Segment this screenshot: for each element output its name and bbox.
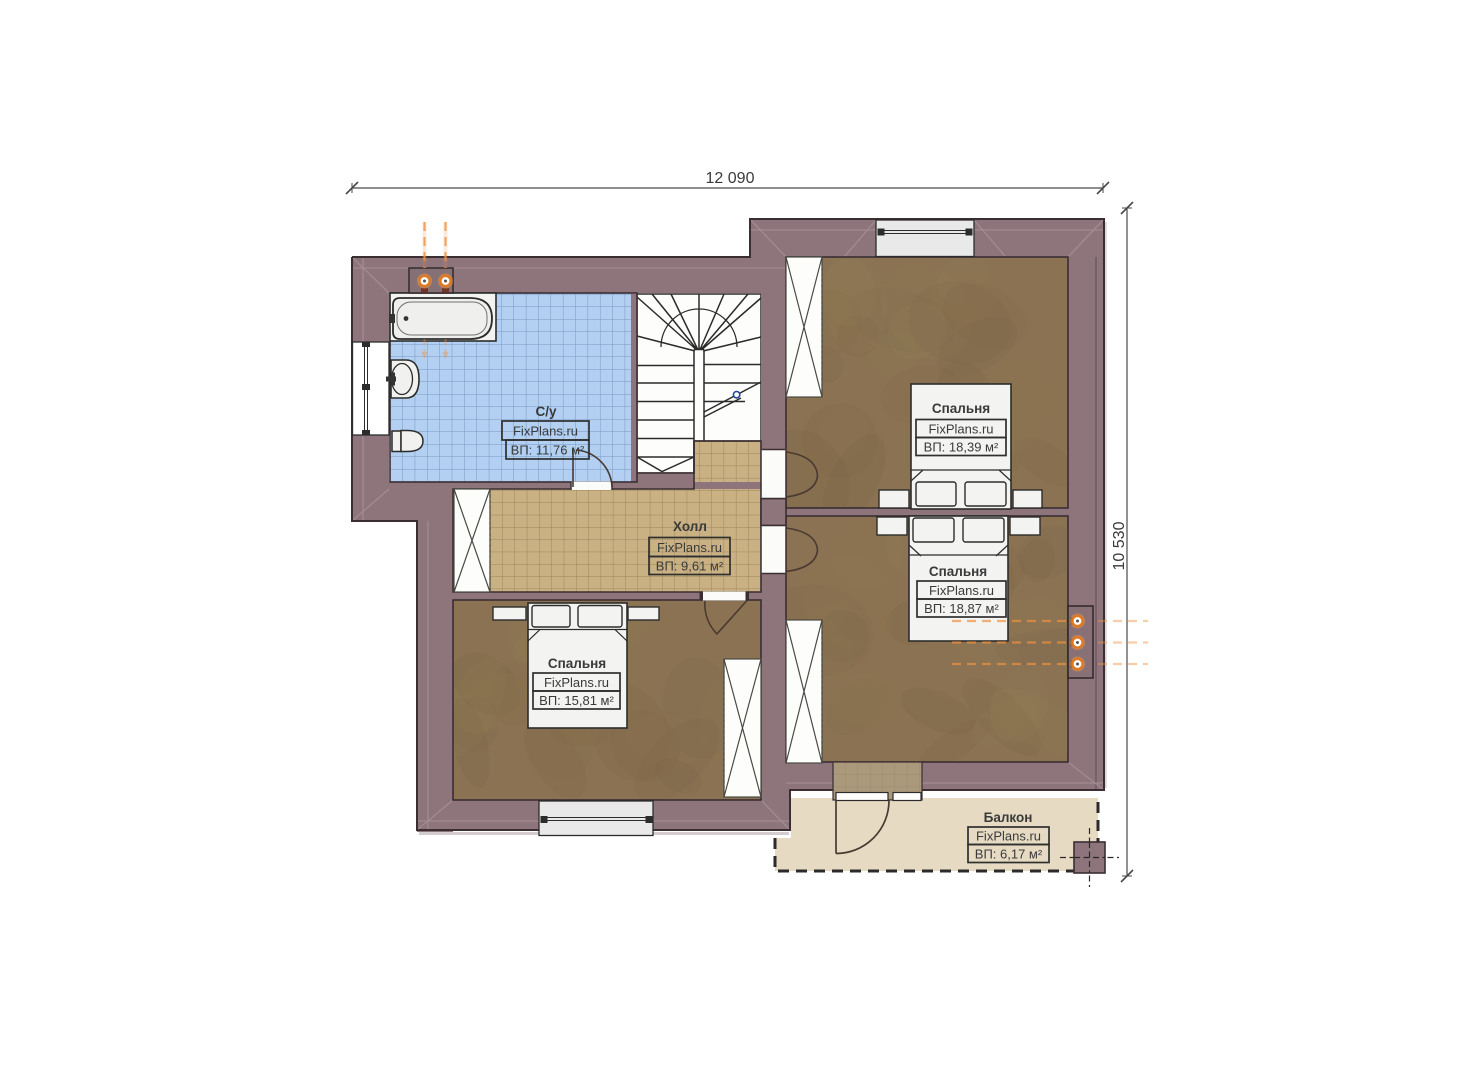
svg-text:С/у: С/у bbox=[535, 404, 557, 419]
svg-text:FixPlans.ru: FixPlans.ru bbox=[657, 540, 722, 555]
svg-text:ВП: 18,39 м²: ВП: 18,39 м² bbox=[924, 440, 999, 455]
svg-text:ВП: 18,87 м²: ВП: 18,87 м² bbox=[924, 601, 999, 616]
svg-text:Спальня: Спальня bbox=[548, 656, 606, 671]
svg-text:10 530: 10 530 bbox=[1111, 521, 1128, 570]
svg-text:Спальня: Спальня bbox=[932, 401, 990, 416]
svg-text:FixPlans.ru: FixPlans.ru bbox=[976, 829, 1041, 844]
svg-text:FixPlans.ru: FixPlans.ru bbox=[929, 583, 994, 598]
svg-text:FixPlans.ru: FixPlans.ru bbox=[544, 675, 609, 690]
svg-text:Холл: Холл bbox=[673, 519, 707, 534]
svg-text:FixPlans.ru: FixPlans.ru bbox=[928, 422, 993, 437]
svg-text:ВП: 15,81 м²: ВП: 15,81 м² bbox=[539, 693, 614, 708]
svg-text:ВП: 6,17 м²: ВП: 6,17 м² bbox=[975, 847, 1043, 862]
svg-text:ВП: 9,61 м²: ВП: 9,61 м² bbox=[656, 559, 724, 574]
svg-text:12 090: 12 090 bbox=[706, 170, 755, 187]
svg-text:ВП: 11,76 м²: ВП: 11,76 м² bbox=[511, 443, 585, 458]
svg-text:Спальня: Спальня bbox=[929, 564, 987, 579]
svg-text:FixPlans.ru: FixPlans.ru bbox=[513, 424, 578, 439]
svg-text:Балкон: Балкон bbox=[984, 810, 1033, 825]
